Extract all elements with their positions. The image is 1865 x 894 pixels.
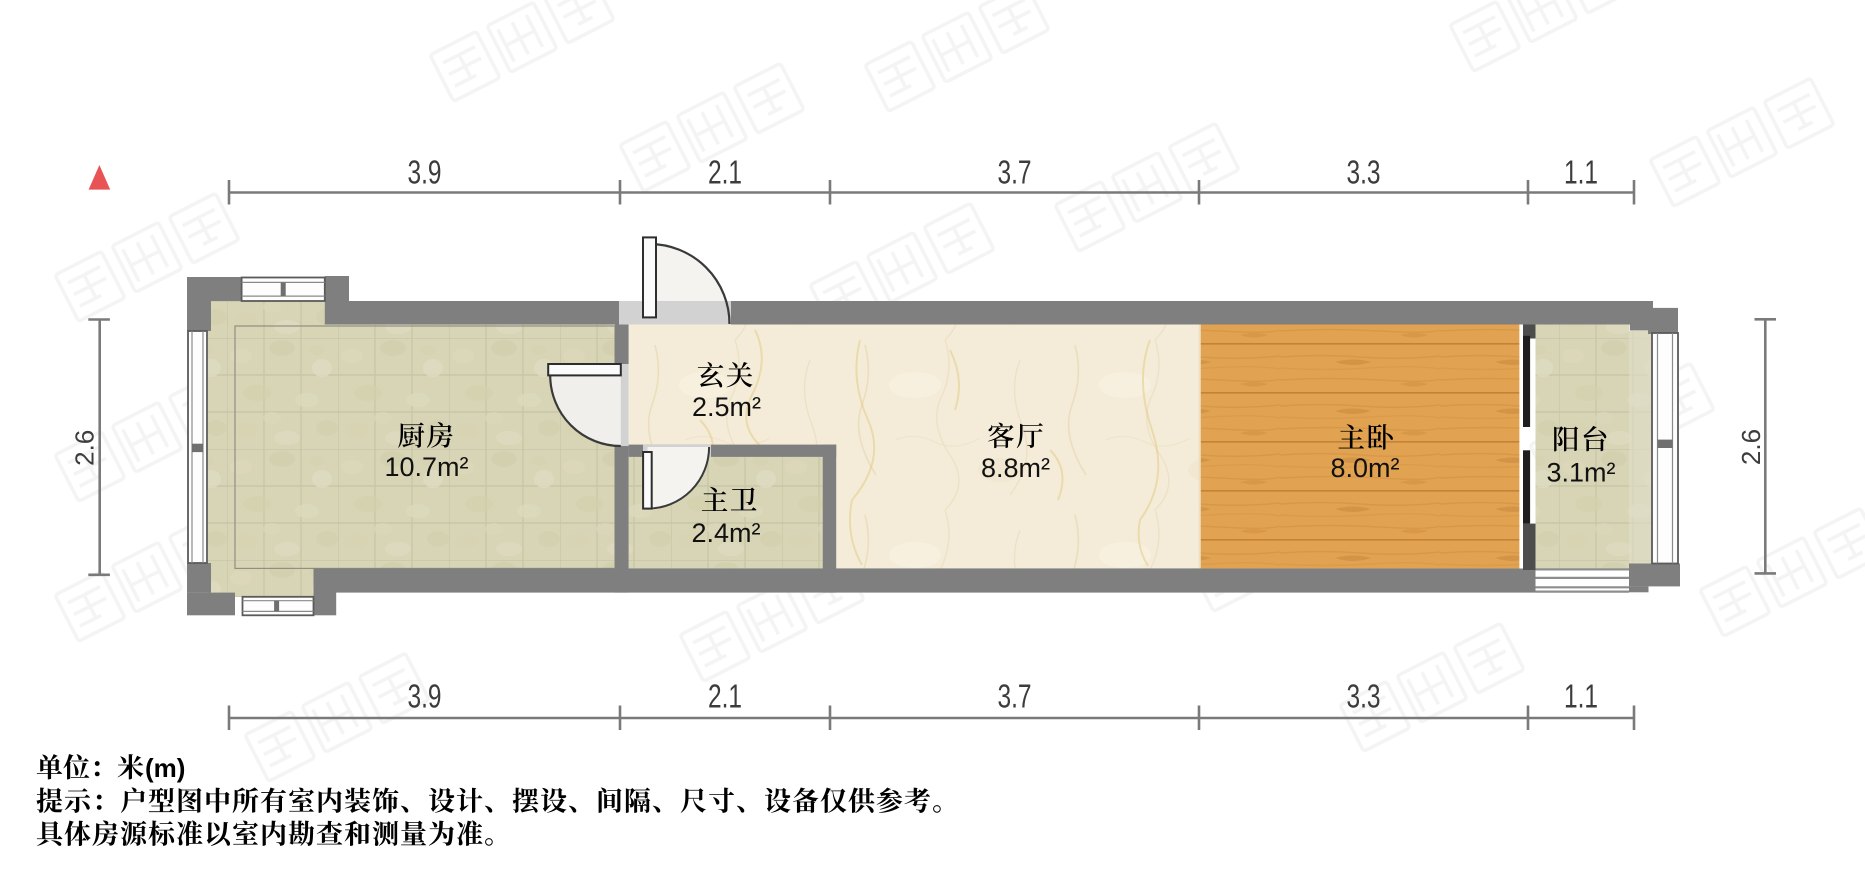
svg-text:3.3: 3.3 xyxy=(1347,678,1381,715)
svg-text:3.3: 3.3 xyxy=(1347,153,1381,190)
svg-text:2.6: 2.6 xyxy=(69,430,99,466)
svg-text:2.1: 2.1 xyxy=(708,678,742,715)
svg-text:2.5m²: 2.5m² xyxy=(692,392,761,422)
svg-text:1.1: 1.1 xyxy=(1564,678,1598,715)
svg-text:3.9: 3.9 xyxy=(408,153,442,190)
svg-text:2.6: 2.6 xyxy=(1736,429,1766,465)
svg-text:3.7: 3.7 xyxy=(998,678,1032,715)
svg-text:2.1: 2.1 xyxy=(708,153,742,190)
svg-text:10.7m²: 10.7m² xyxy=(384,452,468,482)
svg-text:3.9: 3.9 xyxy=(408,678,442,715)
svg-text:3.7: 3.7 xyxy=(998,153,1032,190)
svg-text:2.4m²: 2.4m² xyxy=(691,518,760,548)
svg-text:1.1: 1.1 xyxy=(1564,153,1598,190)
svg-text:8.8m²: 8.8m² xyxy=(981,453,1050,483)
svg-text:(m): (m) xyxy=(145,753,185,783)
svg-text:3.1m²: 3.1m² xyxy=(1546,457,1615,487)
svg-text:8.0m²: 8.0m² xyxy=(1330,453,1399,483)
